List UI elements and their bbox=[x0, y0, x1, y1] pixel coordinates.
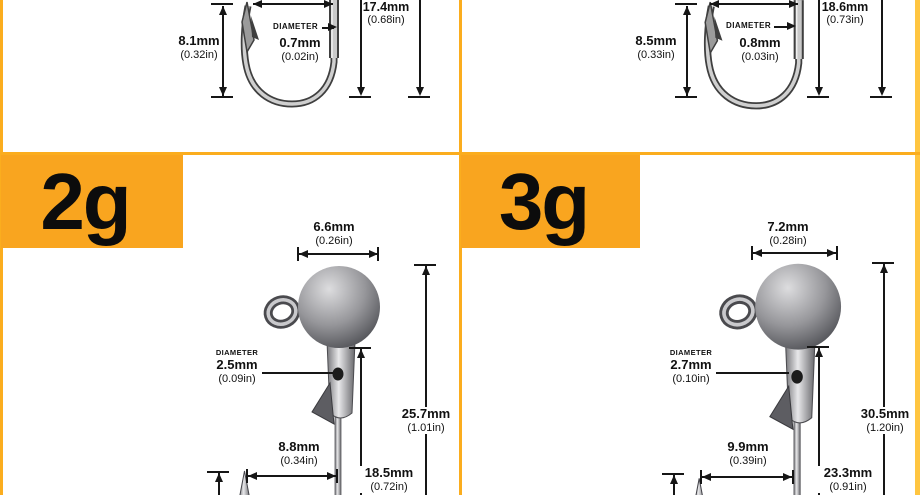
dim-tick bbox=[349, 96, 371, 98]
dim-arrow bbox=[299, 250, 308, 258]
head-width-label-bl: 6.6mm (0.26in) bbox=[303, 220, 365, 247]
dim-arrow bbox=[219, 6, 227, 15]
dim-line bbox=[248, 475, 336, 477]
dim-tick bbox=[792, 470, 794, 484]
dim-arrow bbox=[753, 249, 762, 257]
dim-tick bbox=[211, 96, 233, 98]
dim-arrow bbox=[327, 472, 336, 480]
gap-height-label-tr: 8.5mm (0.33in) bbox=[626, 34, 686, 61]
dim-arrow bbox=[416, 87, 424, 96]
dim-line bbox=[753, 252, 836, 254]
gap-height-label-tl: 8.1mm (0.32in) bbox=[169, 34, 229, 61]
dim-arrow bbox=[683, 87, 691, 96]
dim-arrow bbox=[324, 0, 333, 8]
dim-line bbox=[818, 0, 820, 87]
dim-arrow bbox=[783, 473, 792, 481]
weight-3g-label: 3g bbox=[499, 156, 588, 248]
dim-arrow bbox=[789, 0, 798, 8]
dim-line bbox=[419, 0, 421, 87]
weight-badge-2g: 2g bbox=[1, 155, 183, 248]
right-border bbox=[915, 0, 920, 495]
dim-line bbox=[673, 475, 675, 495]
leader-line bbox=[716, 372, 789, 374]
total-length-label-bl: 25.7mm (1.01in) bbox=[396, 407, 456, 434]
dim-arrow bbox=[219, 87, 227, 96]
gap-width-label-br: 9.9mm (0.39in) bbox=[718, 440, 778, 467]
dim-tick bbox=[836, 246, 838, 260]
dim-line bbox=[253, 3, 333, 5]
dim-tick bbox=[807, 96, 829, 98]
gap-width-label-bl: 8.8mm (0.34in) bbox=[269, 440, 329, 467]
leader-line bbox=[262, 372, 333, 374]
diameter-caption-tl: DIAMETER bbox=[258, 22, 318, 31]
length-label-tl: 17.4mm (0.68in) bbox=[362, 0, 410, 26]
dim-line bbox=[883, 264, 885, 495]
dim-arrow bbox=[357, 87, 365, 96]
total-length-label-br: 30.5mm (1.20in) bbox=[855, 407, 915, 434]
dim-arrow bbox=[683, 6, 691, 15]
dim-arrow bbox=[878, 87, 886, 96]
dim-tick bbox=[870, 96, 892, 98]
dim-tick bbox=[336, 469, 338, 483]
dim-tick bbox=[675, 96, 697, 98]
dim-arrow bbox=[328, 23, 337, 31]
dim-line bbox=[686, 6, 688, 96]
shank-length-label-br: 23.3mm (0.91in) bbox=[818, 466, 878, 493]
dim-arrow bbox=[248, 472, 257, 480]
dim-arrow bbox=[253, 0, 262, 8]
diameter-label-bl: DIAMETER 2.5mm (0.09in) bbox=[206, 349, 268, 385]
shank-length-label-bl: 18.5mm (0.72in) bbox=[360, 466, 418, 493]
length-label-tr: 18.6mm (0.73in) bbox=[821, 0, 869, 26]
dim-tick bbox=[675, 3, 697, 5]
dim-line bbox=[425, 266, 427, 495]
weight-2g-label: 2g bbox=[40, 156, 129, 248]
dim-line bbox=[774, 26, 787, 28]
dim-arrow bbox=[787, 22, 796, 30]
diameter-label-tr: 0.8mm (0.03in) bbox=[729, 36, 791, 63]
dim-tick bbox=[211, 3, 233, 5]
dim-arrow bbox=[815, 87, 823, 96]
dim-line bbox=[881, 0, 883, 87]
diameter-label-br: DIAMETER 2.7mm (0.10in) bbox=[660, 349, 722, 385]
weight-badge-3g: 3g bbox=[461, 155, 640, 248]
dim-arrow bbox=[369, 250, 378, 258]
head-width-label-br: 7.2mm (0.28in) bbox=[757, 220, 819, 247]
dim-line bbox=[299, 253, 377, 255]
dim-tick bbox=[408, 96, 430, 98]
dim-line bbox=[702, 476, 792, 478]
dim-arrow bbox=[710, 0, 719, 8]
dim-line bbox=[218, 473, 220, 495]
dim-arrow bbox=[702, 473, 711, 481]
diameter-caption-tr: DIAMETER bbox=[719, 21, 771, 30]
diameter-label-tl: 0.7mm (0.02in) bbox=[269, 36, 331, 63]
dim-line bbox=[710, 3, 798, 5]
spec-diagram: 2g 3g 8.1mm (0.32in) DIAMETER 0.7mm (0.0… bbox=[0, 0, 920, 495]
dim-arrow bbox=[827, 249, 836, 257]
